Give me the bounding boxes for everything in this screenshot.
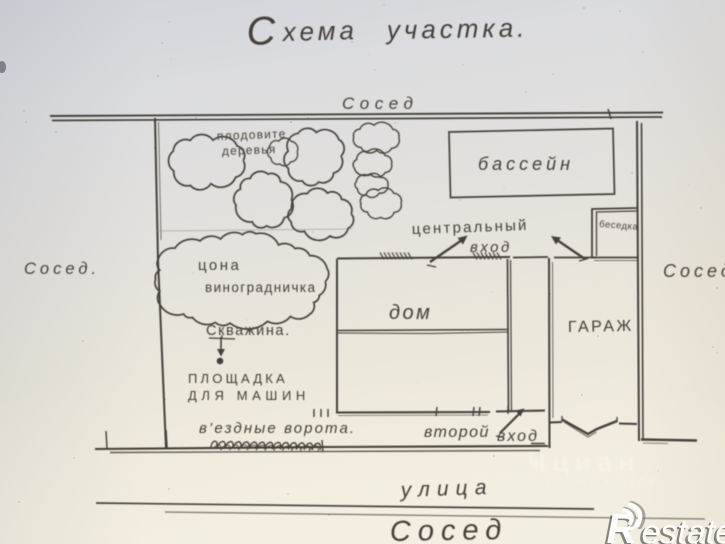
svg-text:плодовите: плодовите [217, 127, 287, 143]
svg-text:вход: вход [470, 239, 512, 256]
svg-text:ГАРАЖ: ГАРАЖ [568, 318, 634, 336]
svg-text:Сосед: Сосед [663, 261, 725, 281]
svg-text:второй: второй [424, 424, 490, 441]
svg-text:участка.: участка. [385, 13, 529, 46]
svg-text:ДЛЯ МАШИН: ДЛЯ МАШИН [188, 388, 310, 403]
svg-text:цона: цона [198, 257, 241, 274]
svg-text:Сосед: Сосед [342, 94, 418, 113]
svg-text:дом: дом [389, 302, 432, 324]
svg-text:Ҹциан: Ҹциан [527, 447, 641, 477]
svg-text:Сосед.: Сосед. [24, 260, 100, 278]
svg-text:БЛИЖЕ К ДЕЛУ: БЛИЖЕ К ДЕЛУ [545, 475, 657, 489]
svg-text:в’ездные ворота.: в’ездные ворота. [199, 420, 356, 437]
svg-text:Скважина.: Скважина. [206, 323, 291, 339]
svg-text:деревья: деревья [222, 142, 277, 158]
svg-text:улица: улица [398, 476, 493, 502]
svg-text:виноградничка: виноградничка [205, 280, 316, 295]
svg-text:хема: хема [280, 15, 358, 47]
svg-text:estate: estate [642, 514, 725, 544]
svg-text:Сосед: Сосед [390, 514, 509, 544]
svg-text:ПЛОЩАДКА: ПЛОЩАДКА [188, 371, 288, 386]
svg-text:бассейн: бассейн [478, 154, 574, 174]
svg-text:C: C [246, 9, 278, 54]
